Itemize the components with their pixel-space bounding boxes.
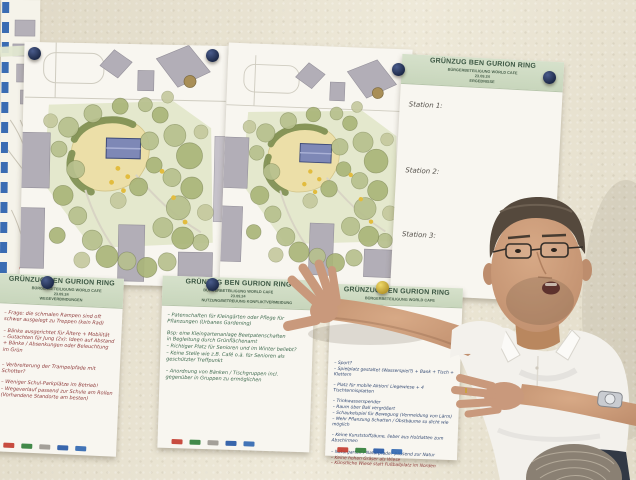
partner-logo (225, 441, 236, 446)
note-line: – Keine Stelle wie z.B. Café o.ä. für Se… (166, 350, 307, 367)
left-hand (455, 378, 524, 414)
note-line: – Frage: die schmalen Rampen sind oft sc… (4, 310, 117, 328)
flipchart2-topic: NUTZUNG/BETREUUNG KONFLIKTVERMEIDUNG (201, 298, 274, 305)
wristwatch (597, 391, 622, 408)
partner-logo (391, 449, 402, 454)
station-label-3: Station 3: (402, 230, 436, 240)
partner-logo (207, 440, 218, 445)
note-line: – Keine Kunststoffzäune, lieber aus Holz… (331, 432, 452, 448)
push-pin (543, 71, 556, 84)
audience-head (526, 444, 622, 480)
workshop-wall-photo: GRÜNZUG BEN GURION RING BÜRGERBETEILIGUN… (0, 0, 636, 480)
station-label-1: Station 1: (409, 100, 443, 110)
push-pin (206, 278, 219, 291)
partner-logo (3, 443, 14, 448)
partner-logo (337, 447, 348, 452)
polo-shirt (455, 328, 629, 480)
station-label-2: Station 2: (405, 166, 439, 176)
partner-logo (21, 443, 32, 448)
shirt-fold (520, 370, 576, 379)
results-poster-header: GRÜNZUG BEN GURION RING BÜRGERBETEILIGUN… (401, 54, 564, 93)
note-line: – Verbreiterung der Trampelpfade mit Sch… (2, 362, 115, 380)
push-pin (28, 47, 41, 60)
partner-logo (243, 441, 254, 446)
wall-shadow (582, 180, 636, 440)
shirt-fold (498, 430, 600, 439)
push-pin (392, 63, 405, 76)
note-line: – Anordnung von Bänken / Tischgruppen in… (165, 367, 306, 384)
shirt-button (535, 366, 538, 369)
collar-right (556, 330, 580, 360)
flipchart1-notes: – Frage: die schmalen Rampen sind oft sc… (0, 304, 123, 411)
flipchart-nutzung-betreuung: GRÜNZUG BEN GURION RING BÜRGERBETEILIGUN… (157, 276, 314, 453)
site-plan-left (19, 42, 228, 287)
collar-left (497, 330, 520, 362)
flipchart2-header: GRÜNZUG BEN GURION RING BÜRGERBETEILIGUN… (162, 276, 315, 311)
partner-logos (3, 443, 109, 453)
trousers (548, 449, 630, 480)
site-plan-right (219, 43, 412, 294)
partner-logos (171, 439, 300, 448)
note-line: – Gutachten für Jung (2x): Ideen auf Abs… (2, 334, 116, 358)
partner-logo (355, 448, 366, 453)
flipchart2-notes: – Patenschaften für Kleingärten oder Pfl… (159, 306, 313, 391)
flipchart-wegeverbindungen: GRÜNZUG BEN GURION RING BÜRGERBETEILIGUN… (0, 273, 124, 456)
flipchart-spiel-aufenthalt: GRÜNZUG BEN GURION RING BÜRGERBETEILIGUN… (325, 284, 463, 461)
partner-logo (39, 444, 50, 449)
partner-logo (171, 439, 182, 444)
partner-logo (75, 446, 86, 451)
push-pin (206, 49, 219, 62)
push-pin-yellow (376, 281, 389, 294)
partner-logo (57, 445, 68, 450)
placket (537, 356, 538, 392)
partner-logo (189, 440, 200, 445)
push-pin (41, 276, 54, 289)
results-poster: GRÜNZUG BEN GURION RING BÜRGERBETEILIGUN… (390, 54, 564, 302)
neck (515, 316, 560, 350)
ear-right (580, 259, 592, 281)
note-line: – Platz für mobile Aktion! Liegewiese + … (333, 382, 454, 398)
left-forearm (518, 384, 636, 426)
partner-logo (373, 448, 384, 453)
note-line: – Patenschaften für Kleingärten oder Pfl… (167, 312, 308, 329)
